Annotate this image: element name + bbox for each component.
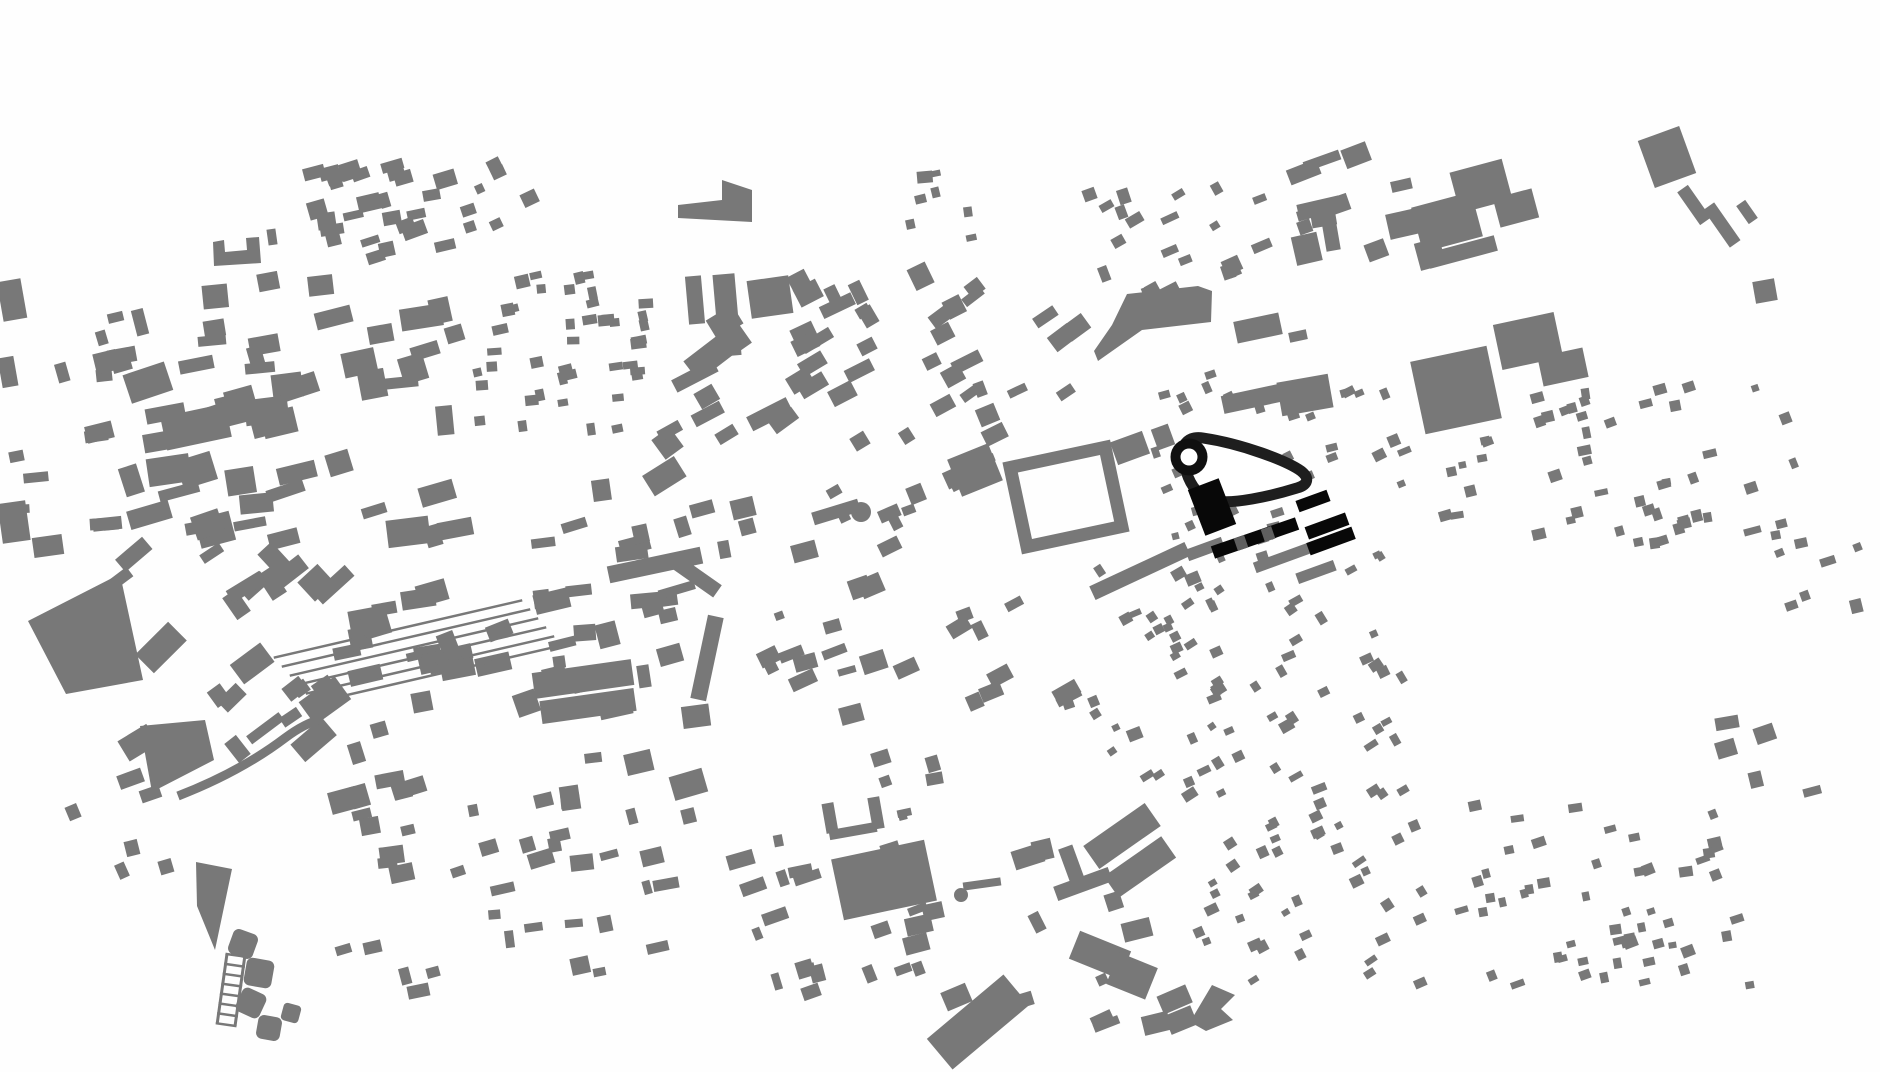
building-footprint	[536, 284, 546, 294]
building-footprint	[598, 314, 611, 326]
building-footprint	[1770, 530, 1781, 540]
building-footprint	[1703, 512, 1713, 523]
building-footprint	[1308, 199, 1337, 229]
building-footprint	[552, 655, 566, 669]
building-footprint	[201, 283, 229, 309]
building-footprint	[1524, 884, 1534, 895]
building-footprint	[1478, 907, 1488, 917]
building-footprint	[560, 793, 580, 810]
building-footprint	[1678, 866, 1693, 878]
building-footprint	[1485, 893, 1496, 903]
building-footprint	[564, 284, 576, 295]
building-footprint	[1669, 400, 1682, 413]
building-footprint	[255, 1014, 283, 1042]
building-footprint	[486, 361, 497, 372]
building-footprint	[89, 517, 116, 530]
building-footprint	[525, 395, 539, 407]
building-footprint	[1609, 924, 1622, 936]
building-footprint	[638, 298, 653, 308]
building-footprint	[239, 492, 274, 514]
building-footprint	[630, 337, 647, 349]
building-footprint	[681, 703, 711, 729]
building-footprint	[32, 534, 64, 558]
building-footprint	[565, 918, 584, 928]
building-footprint	[243, 957, 275, 989]
building-footprint	[359, 816, 381, 836]
building-footprint	[500, 303, 515, 318]
building-footprint	[517, 420, 527, 432]
building-footprint	[474, 415, 486, 426]
building-footprint	[307, 274, 334, 297]
building-footprint	[609, 318, 620, 327]
building-footprint	[567, 337, 579, 345]
building-footprint	[586, 423, 596, 436]
building-footprint	[584, 752, 602, 764]
building-footprint	[569, 853, 594, 872]
building-footprint	[487, 347, 502, 355]
building-footprint	[379, 845, 406, 866]
building-footprint	[435, 405, 454, 436]
building-footprint	[1752, 278, 1777, 303]
building-footprint	[1721, 930, 1732, 942]
figure-ground-map	[0, 0, 1880, 1072]
building-footprint	[1649, 537, 1660, 549]
building-footprint	[224, 466, 257, 497]
building-footprint	[410, 690, 433, 713]
building-footprint	[476, 380, 489, 391]
building-footprint	[612, 393, 624, 401]
building-footprint	[573, 624, 596, 642]
building-footprint	[631, 370, 643, 380]
building-footprint	[1745, 981, 1755, 990]
building-footprint	[203, 318, 227, 338]
building-footprint	[591, 478, 612, 502]
building-footprint	[963, 206, 973, 217]
building-footprint	[488, 909, 501, 919]
building-footprint	[1446, 466, 1457, 477]
building-footprint	[747, 275, 794, 318]
building-footprint	[565, 319, 575, 330]
building-footprint	[1668, 942, 1677, 949]
highlight-tower-courtyard	[1181, 449, 1198, 466]
building-footprint	[1581, 388, 1591, 400]
building-footprint	[1613, 957, 1623, 969]
map-canvas	[0, 0, 1880, 1072]
